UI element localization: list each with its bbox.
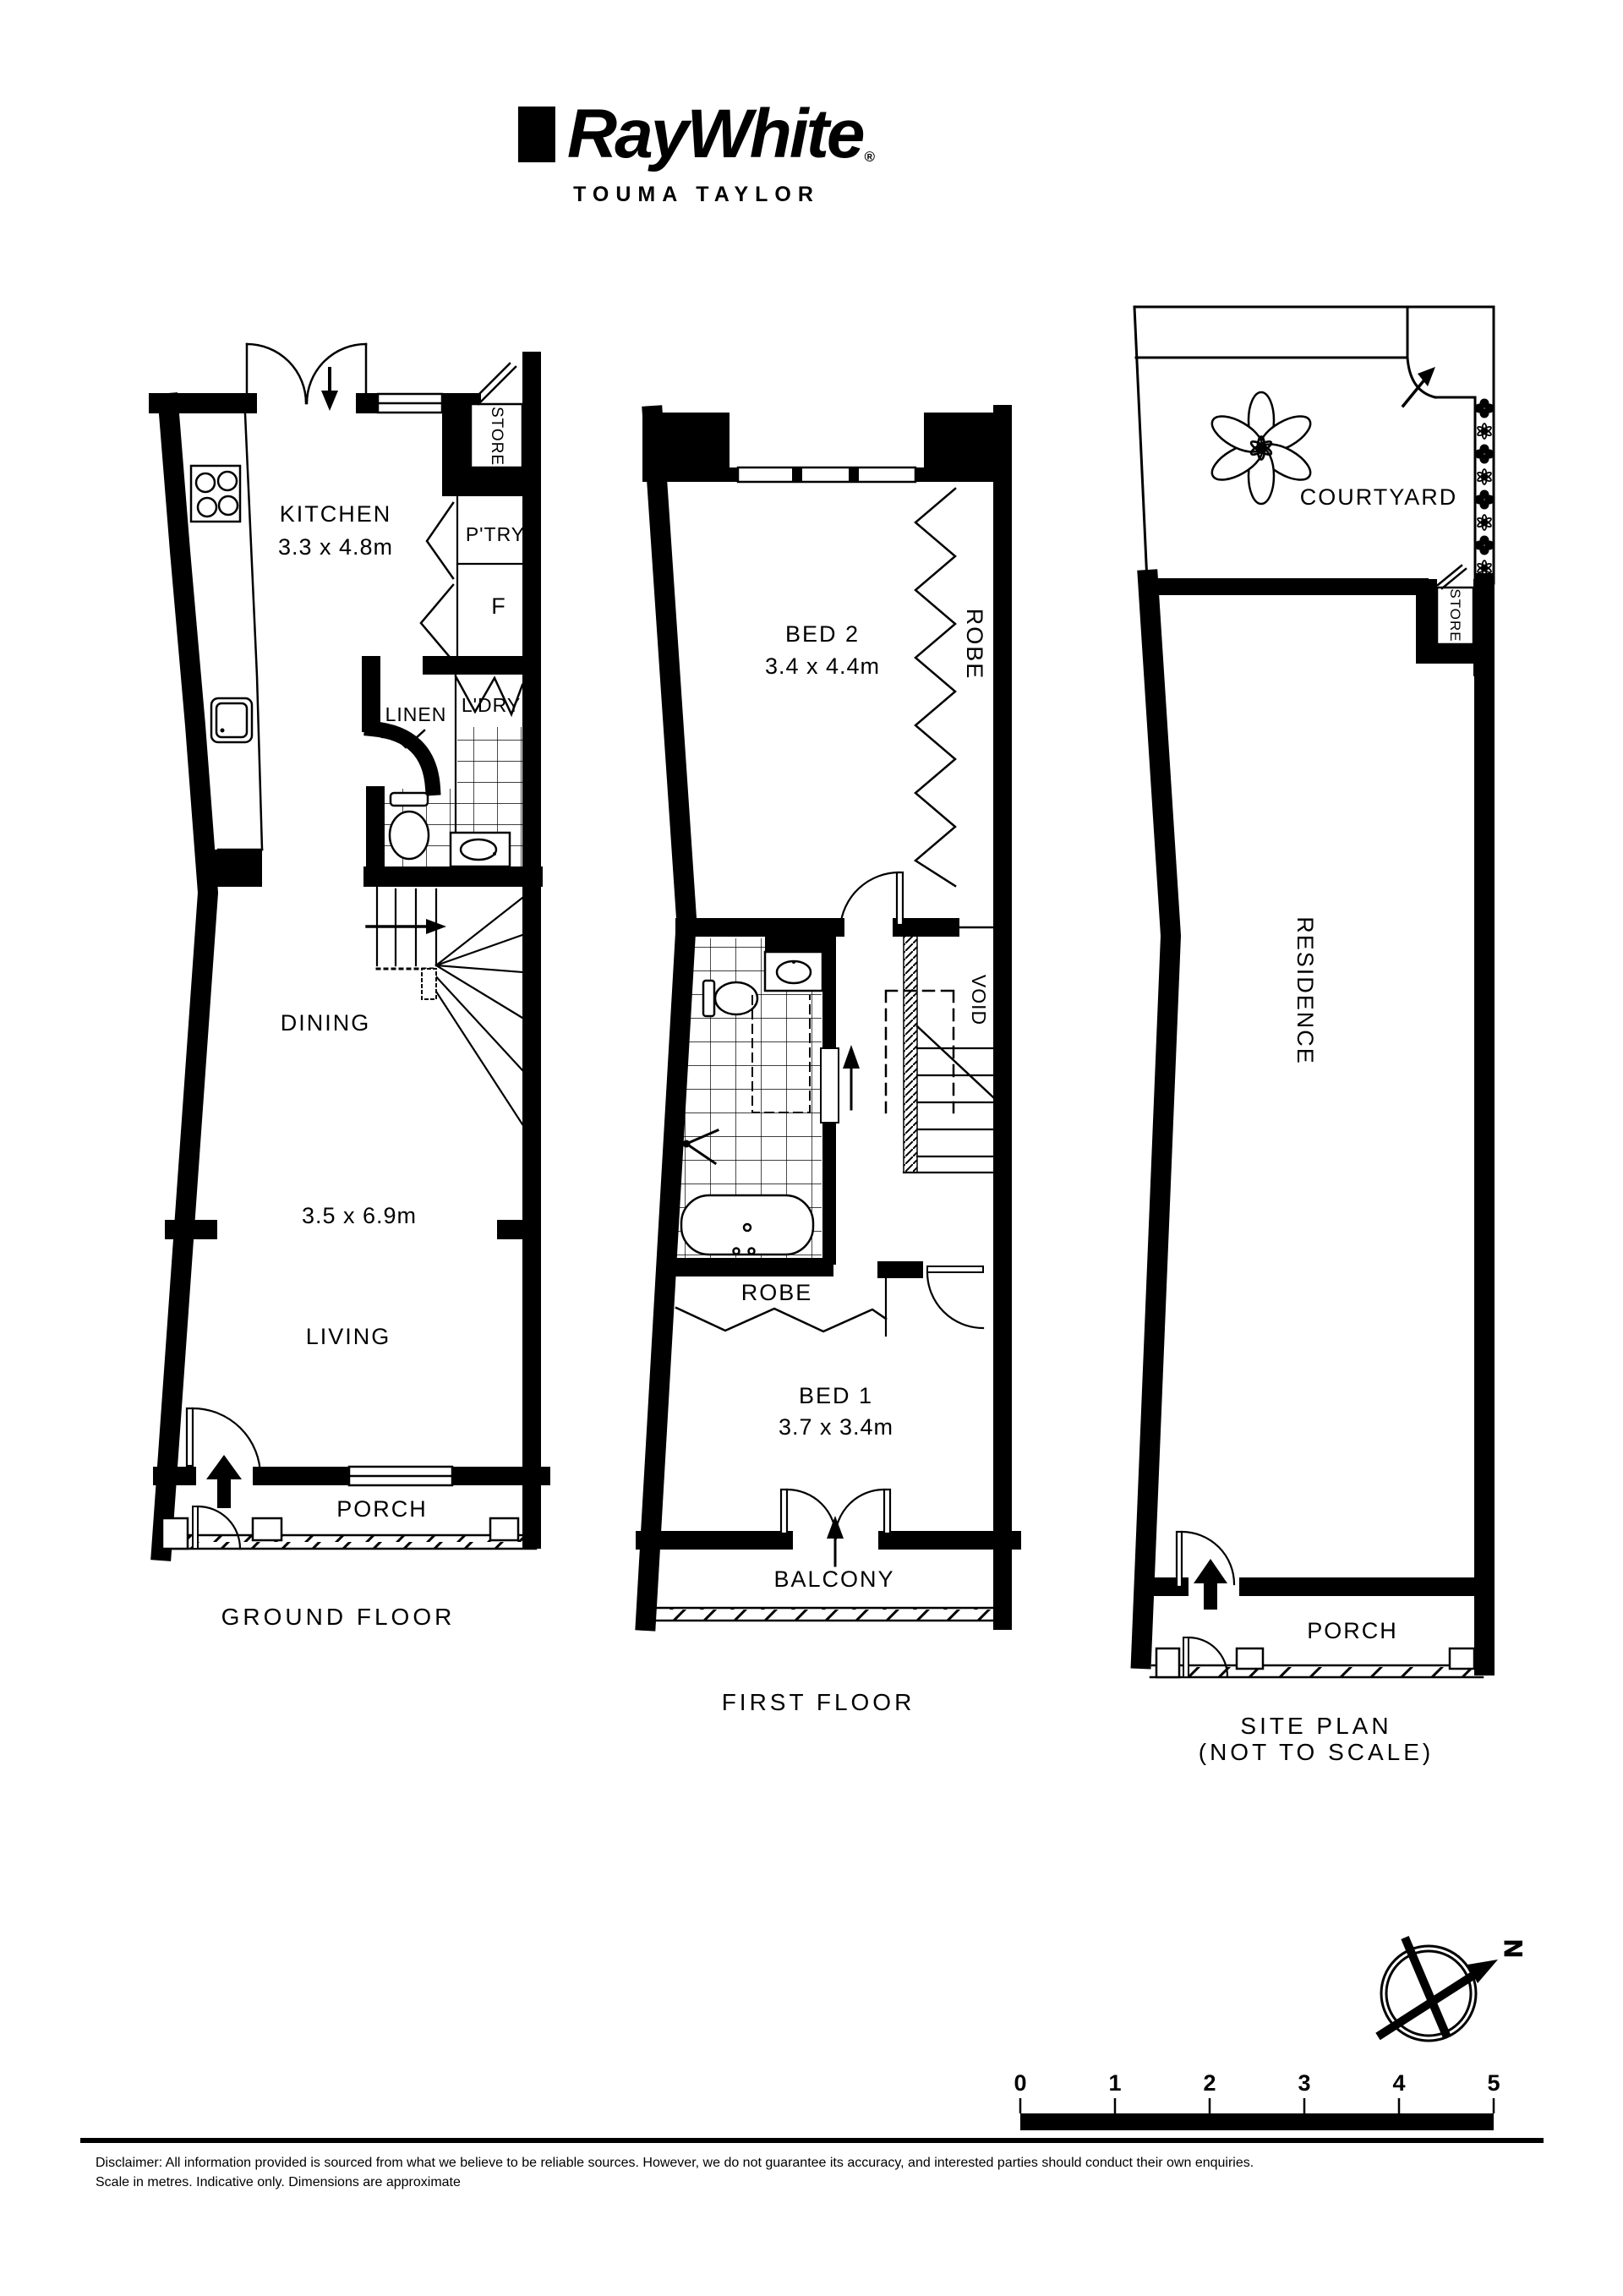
living-label: LIVING [306,1324,391,1349]
store-label: STORE [488,407,505,466]
floor-plan-sheet: RayWhite ® TOUMA TAYLOR [0,0,1623,2296]
fridge-label: F [491,593,506,619]
dining-label: DINING [281,1010,371,1036]
ground-front-window [349,1467,452,1485]
disclaimer-line1: Disclaimer: All information provided is … [96,2153,1254,2173]
void-stairwell [886,936,993,1173]
gate-arrow-icon [1403,367,1435,406]
landing [821,1045,860,1123]
header: RayWhite ® TOUMA TAYLOR [518,100,875,207]
balcony-edge [641,1608,1000,1621]
first-floor-plan: BED 2 3.4 x 4.4m ROBE VOID ROBE BED 1 3.… [617,355,1065,1657]
balustrade-nib [821,1048,839,1123]
scale-bar: 0 1 2 3 4 5 [1014,2070,1500,2130]
porch-label: PORCH [1307,1618,1398,1643]
scale-tick-label: 4 [1392,2070,1405,2096]
porch-edge-hatch [156,1536,535,1548]
living-dim: 3.5 x 6.9m [302,1203,417,1228]
porch-post [253,1518,281,1540]
bed2-label: BED 2 [785,621,860,647]
stair-balustrade-hatch [904,936,917,1173]
bath-icon [681,1195,813,1255]
fridge-bifold-door [421,585,453,661]
stairs-up-arrow-icon [367,919,446,934]
compass-icon: N [1378,1938,1527,2041]
scale-bar-rect [1020,2113,1494,2130]
bed1-label: BED 1 [799,1383,873,1408]
raywhite-logo-square-icon [518,107,555,162]
porch-post [490,1518,518,1540]
raywhite-logo: RayWhite ® [518,100,875,169]
disclaimer: Disclaimer: All information provided is … [96,2153,1254,2192]
stairs-up-arrow-icon [843,1045,860,1069]
robe1-label: ROBE [741,1280,813,1305]
porch-post [1237,1648,1263,1669]
porch-post [1156,1648,1179,1677]
site-plan-title-line1: SITE PLAN [1199,1713,1434,1739]
residence-label: RESIDENCE [1292,916,1318,1065]
porch-post [162,1518,188,1549]
bed1-door-arc [927,1272,983,1328]
brand-name: RayWhite [567,100,863,169]
basin-icon [765,952,822,991]
balcony-label: BALCONY [773,1566,894,1592]
pantry-closets [421,496,522,661]
bed2-robe [915,489,955,886]
first-rear-window [738,467,915,482]
laundry-label: L'DRY [462,694,521,716]
robe-rail-zigzag [676,1308,886,1331]
ground-floor-title: GROUND FLOOR [221,1604,456,1631]
site-boundary [1134,307,1494,583]
site-store-room: STORE [1437,566,1473,644]
first-floor-title: FIRST FLOOR [722,1689,915,1716]
residence-walls [1141,579,1495,1665]
balcony-arrow-icon [827,1516,844,1566]
balcony-edge-hatch [644,1609,1000,1620]
balcony-doors [781,1490,890,1566]
scale-tick-label: 1 [1108,2070,1121,2096]
compass-north-label: N [1499,1939,1527,1958]
site-plan-title-line2: (NOT TO SCALE) [1199,1739,1434,1765]
front-entry-arrow-icon [206,1455,242,1508]
toilet-icon [703,981,757,1016]
toilet-icon [390,793,429,859]
ground-rear-double-door [247,344,366,403]
porch-edge-hatch [1152,1667,1483,1677]
disclaimer-line2: Scale in metres. Indicative only. Dimens… [96,2173,1254,2192]
basin-icon [451,833,510,866]
bed1-door-leaf [927,1266,983,1272]
site-plan: STORE COURTYARD RESIDENCE PORCH [1090,279,1547,1716]
rear-entry-arrow-icon [321,369,338,411]
site-plan-title: SITE PLAN (NOT TO SCALE) [1199,1713,1434,1765]
scale-tick-label: 3 [1298,2070,1310,2096]
ground-room-labels: KITCHEN 3.3 x 4.8m P'TRY F LINEN L'DRY D… [278,501,525,1522]
scale-tick-label: 5 [1487,2070,1500,2096]
first-bathroom [676,938,822,1258]
bed1-dim: 3.7 x 3.4m [779,1414,893,1440]
void-label: VOID [968,975,990,1025]
residence-entry-arrow-icon [1194,1559,1227,1610]
ground-stairs [367,888,522,1124]
scale-tick-label: 2 [1203,2070,1216,2096]
stove-icon [191,466,240,522]
bed2-dim: 3.4 x 4.4m [765,653,880,679]
kitchen-sink-icon [211,698,252,742]
robe2-label: ROBE [962,609,987,681]
ground-rear-window [378,394,442,413]
site-porch [1150,1637,1483,1677]
porch-label: PORCH [336,1496,428,1522]
scale-tick-label: 0 [1014,2070,1026,2096]
robe1 [676,1266,983,1336]
robe-rail-zigzag [915,489,955,886]
courtyard-label: COURTYARD [1300,484,1458,510]
porch-post [1450,1648,1474,1669]
office-name: TOUMA TAYLOR [518,183,875,207]
pantry-bifold-door [427,503,453,578]
ground-store-room: STORE [471,364,522,467]
footer-rule [80,2138,1544,2143]
kitchen-dim: 3.3 x 4.8m [278,534,393,560]
ground-floor-plan: STORE [76,321,566,1572]
store-label: STORE [1447,588,1463,642]
pantry-label: P'TRY [466,523,525,545]
registered-trademark-icon: ® [865,149,876,166]
garden-strip [1475,399,1495,577]
linen-label: LINEN [385,703,447,725]
stair-treads [917,1048,993,1156]
kitchen-label: KITCHEN [280,501,392,527]
compass-and-scale: N 0 1 2 3 4 5 [964,1902,1555,2147]
